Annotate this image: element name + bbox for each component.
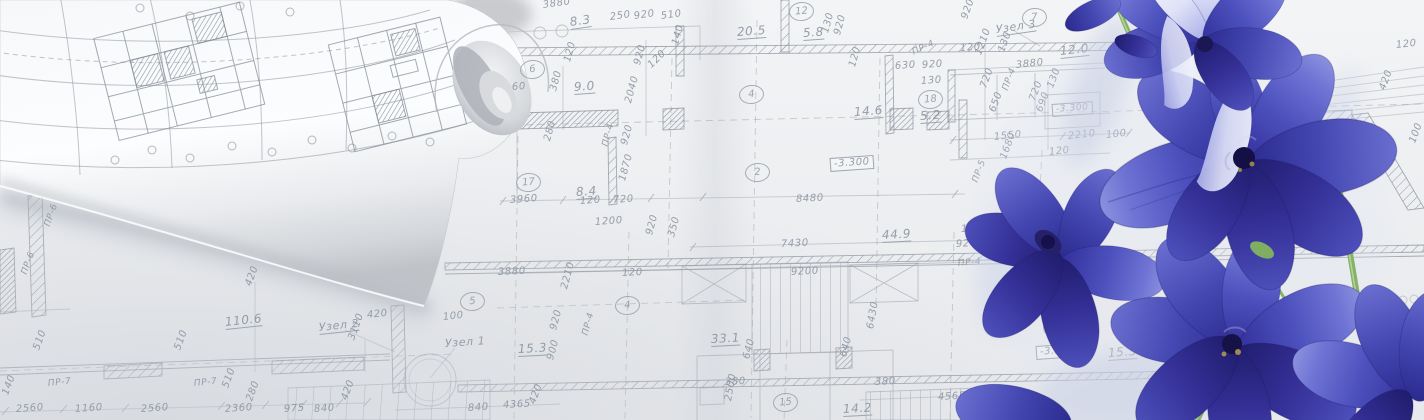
flower-center [1197, 36, 1213, 52]
delphinium-flowers [0, 0, 1424, 420]
blueprint-flower-banner: 38808.325092051020.55.812.09.06012038092… [0, 0, 1424, 420]
